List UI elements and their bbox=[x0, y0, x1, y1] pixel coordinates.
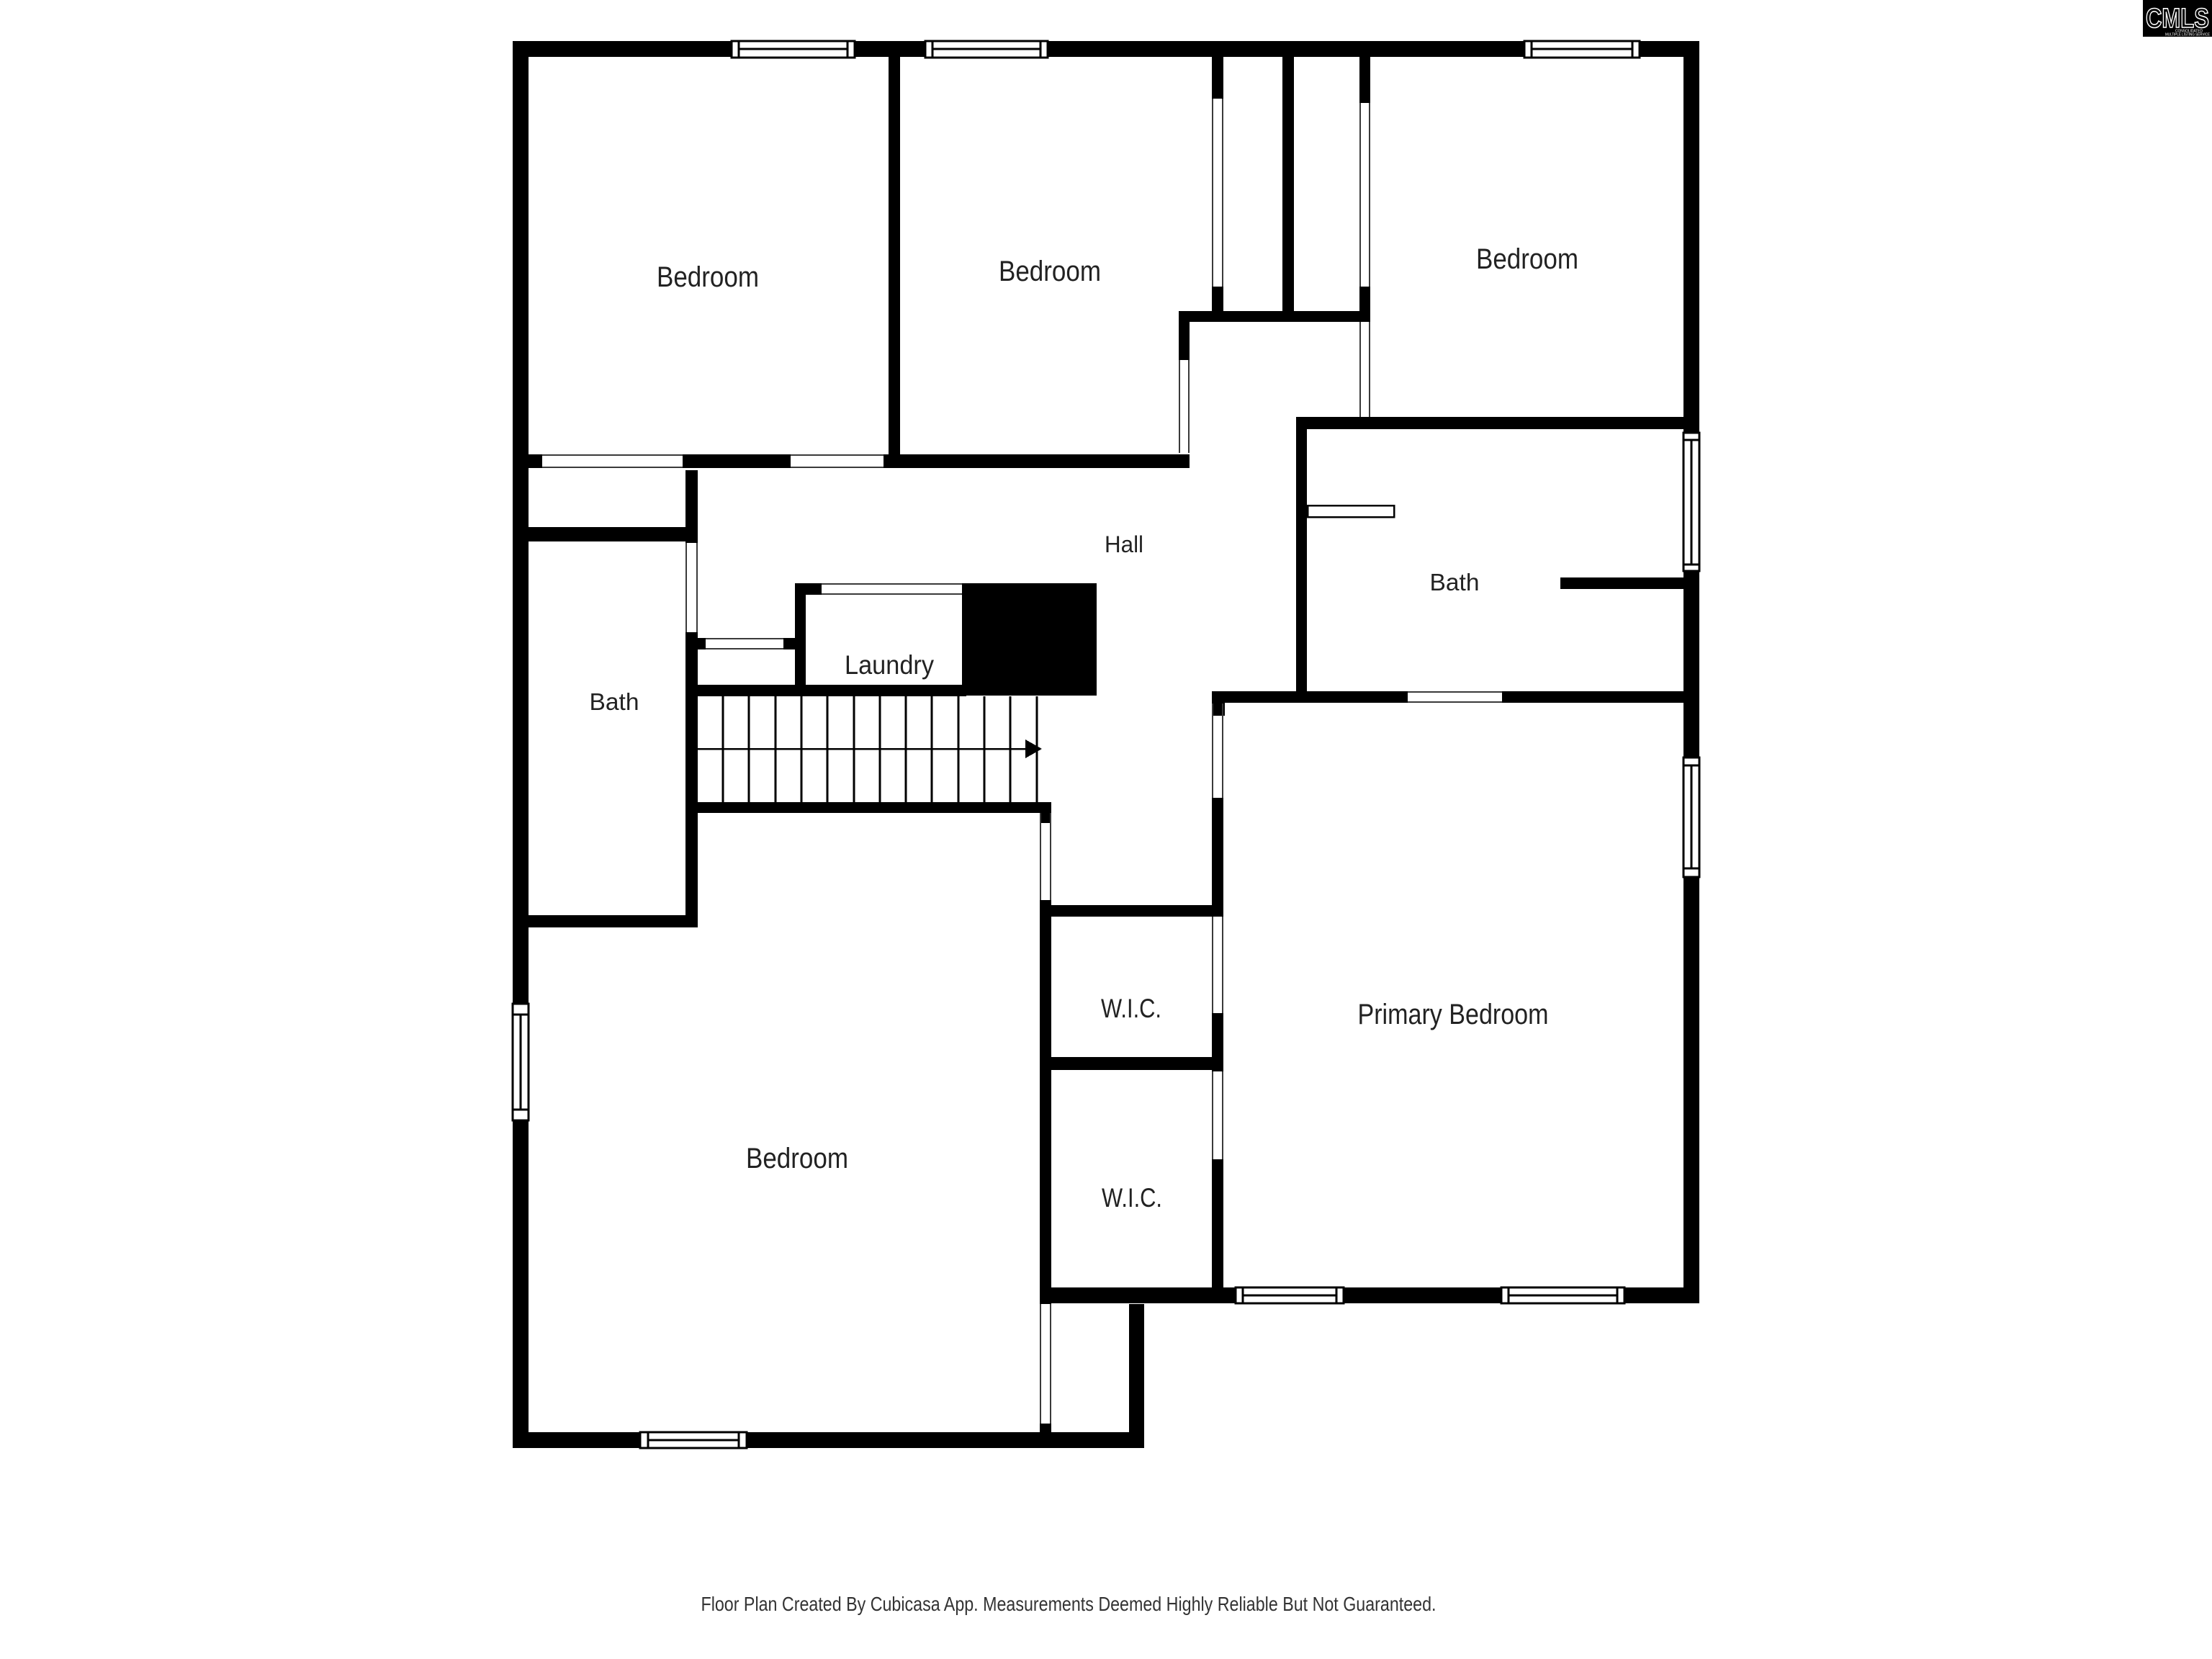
svg-text:W.I.C.: W.I.C. bbox=[1102, 1183, 1162, 1213]
svg-text:Laundry: Laundry bbox=[845, 650, 934, 680]
svg-text:Primary Bedroom: Primary Bedroom bbox=[1358, 999, 1549, 1030]
svg-text:MULTIPLE LISTING SERVICE: MULTIPLE LISTING SERVICE bbox=[2165, 33, 2211, 37]
svg-text:W.I.C.: W.I.C. bbox=[1101, 994, 1161, 1023]
svg-text:Hall: Hall bbox=[1105, 531, 1143, 557]
svg-text:Floor Plan Created By Cubicasa: Floor Plan Created By Cubicasa App. Meas… bbox=[701, 1593, 1437, 1615]
svg-text:Bedroom: Bedroom bbox=[746, 1143, 848, 1174]
svg-text:Bedroom: Bedroom bbox=[657, 261, 759, 293]
svg-text:Bedroom: Bedroom bbox=[999, 256, 1101, 287]
svg-text:Bedroom: Bedroom bbox=[1476, 243, 1578, 275]
svg-text:Bath: Bath bbox=[1430, 569, 1480, 595]
svg-text:Bath: Bath bbox=[590, 688, 639, 715]
